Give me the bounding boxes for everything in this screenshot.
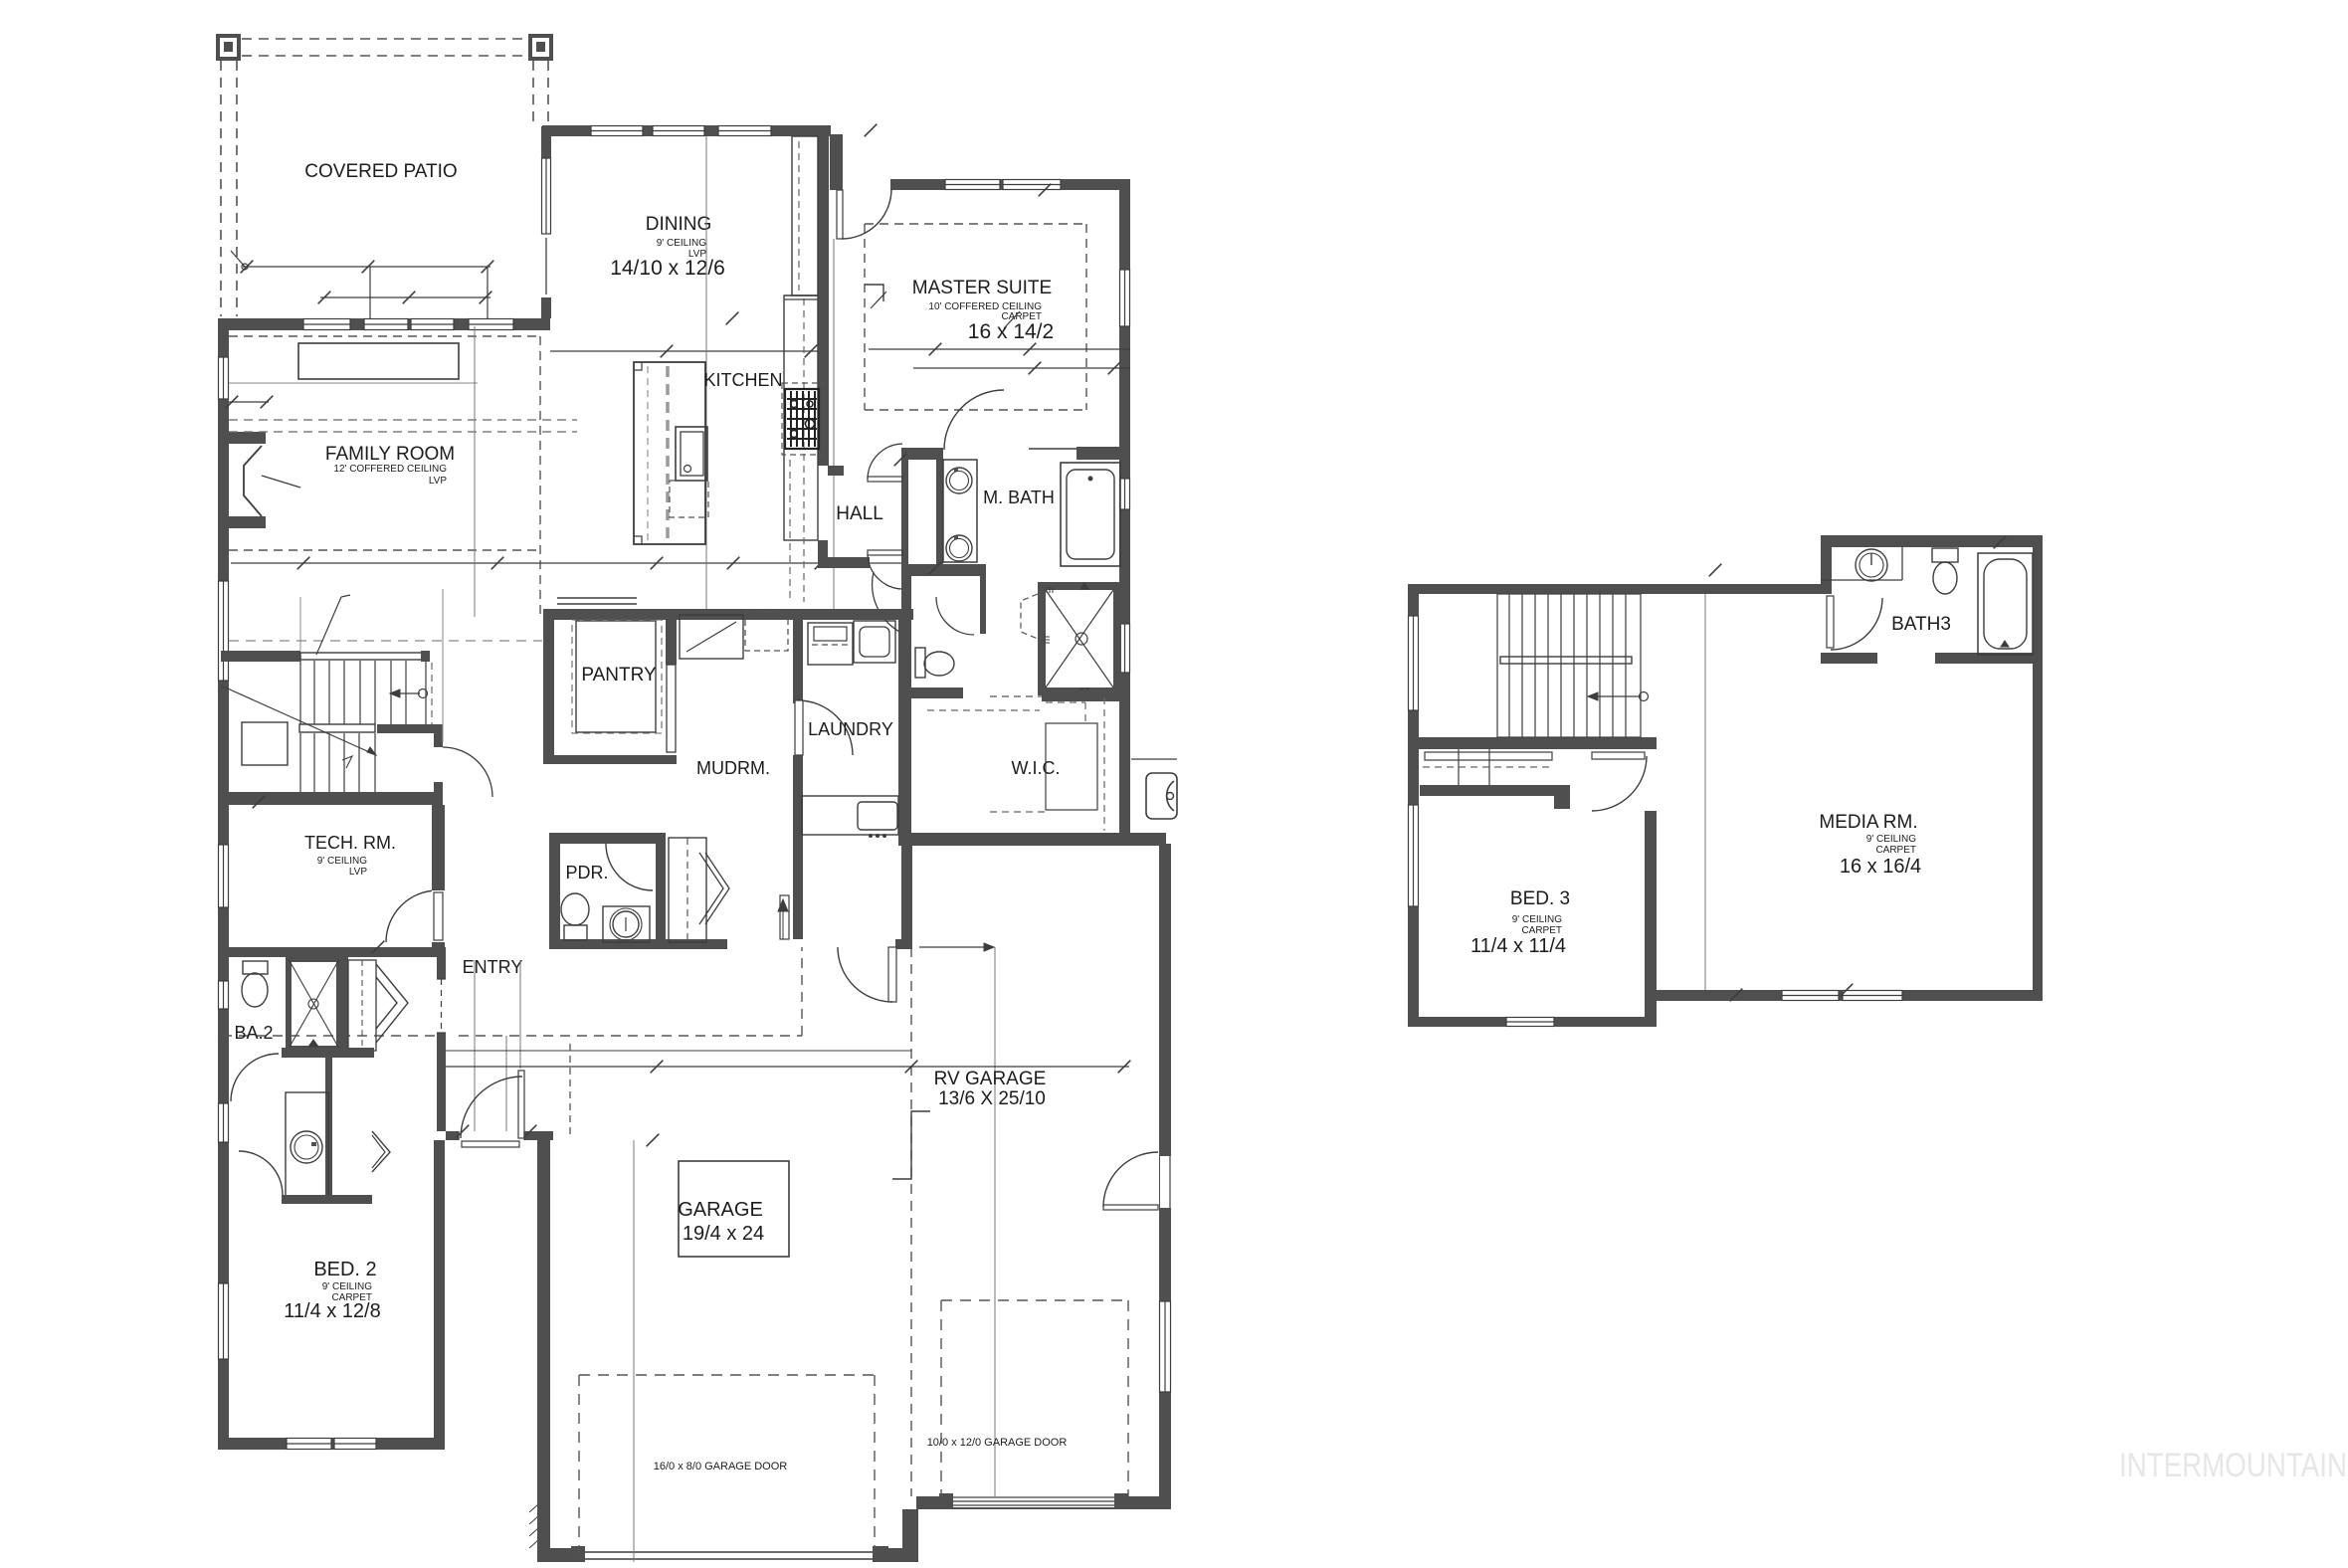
svg-text:RV GARAGE: RV GARAGE <box>934 1069 1047 1089</box>
svg-text:PDR.: PDR. <box>565 863 608 882</box>
svg-text:9' CEILING: 9' CEILING <box>1512 914 1562 925</box>
svg-text:11/4 x 12/8: 11/4 x 12/8 <box>284 1300 380 1322</box>
svg-text:10/0 x 12/0 GARAGE DOOR: 10/0 x 12/0 GARAGE DOOR <box>927 1437 1068 1449</box>
svg-text:W.I.C.: W.I.C. <box>1012 758 1061 778</box>
svg-text:LAUNDRY: LAUNDRY <box>808 719 893 739</box>
svg-text:13/6 X 25/10: 13/6 X 25/10 <box>938 1088 1046 1109</box>
svg-text:16 x 16/4: 16 x 16/4 <box>1840 856 1921 878</box>
svg-text:MASTER SUITE: MASTER SUITE <box>912 278 1052 298</box>
svg-text:12' COFFERED CEILING: 12' COFFERED CEILING <box>333 464 447 475</box>
svg-text:16/0 x 8/0 GARAGE DOOR: 16/0 x 8/0 GARAGE DOOR <box>654 1461 788 1472</box>
svg-text:9' CEILING: 9' CEILING <box>657 238 706 249</box>
svg-text:M. BATH: M. BATH <box>983 488 1055 507</box>
svg-text:DINING: DINING <box>646 214 712 235</box>
svg-text:11/4 x 11/4: 11/4 x 11/4 <box>1470 935 1566 957</box>
svg-text:BATH3: BATH3 <box>1891 614 1951 635</box>
svg-text:PANTRY: PANTRY <box>581 665 657 686</box>
svg-text:INTERMOUNTAIN: INTERMOUNTAIN <box>2119 1447 2347 1484</box>
svg-text:LVP: LVP <box>429 476 447 487</box>
svg-text:BA.2: BA.2 <box>234 1023 273 1043</box>
svg-text:9' CEILING: 9' CEILING <box>322 1281 372 1292</box>
svg-text:CARPET: CARPET <box>1875 845 1916 856</box>
svg-text:MEDIA RM.: MEDIA RM. <box>1819 812 1917 833</box>
svg-text:LVP: LVP <box>349 867 367 878</box>
svg-text:HALL: HALL <box>836 503 883 524</box>
svg-text:COVERED PATIO: COVERED PATIO <box>304 161 457 182</box>
svg-text:16 x 14/2: 16 x 14/2 <box>968 320 1054 343</box>
svg-text:ENTRY: ENTRY <box>463 957 523 977</box>
svg-text:BED. 3: BED. 3 <box>1510 888 1570 909</box>
svg-text:GARAGE: GARAGE <box>678 1199 763 1221</box>
svg-text:KITCHEN: KITCHEN <box>703 370 782 390</box>
svg-text:9' CEILING: 9' CEILING <box>317 856 367 867</box>
svg-text:MUDRM.: MUDRM. <box>696 758 770 778</box>
svg-text:9' CEILING: 9' CEILING <box>1866 834 1916 845</box>
svg-text:BED. 2: BED. 2 <box>313 1259 376 1280</box>
svg-text:19/4 x 24: 19/4 x 24 <box>683 1223 764 1245</box>
svg-text:TECH. RM.: TECH. RM. <box>304 833 396 853</box>
svg-text:FAMILY ROOM: FAMILY ROOM <box>325 444 455 465</box>
svg-text:14/10 x 12/6: 14/10 x 12/6 <box>610 257 725 280</box>
